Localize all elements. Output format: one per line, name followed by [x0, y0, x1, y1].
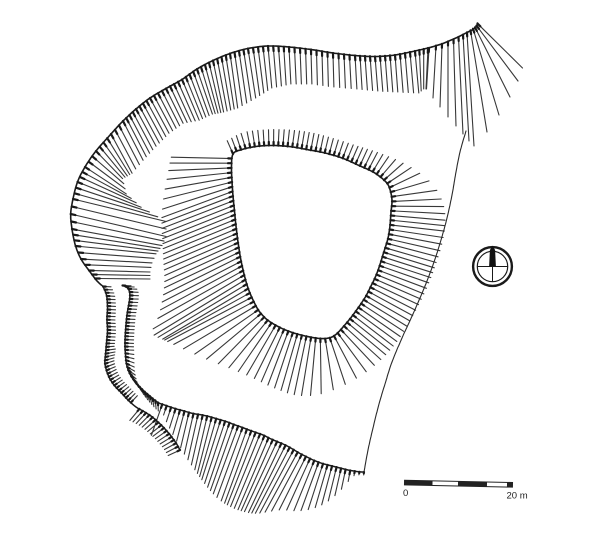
svg-text:0: 0	[403, 488, 408, 499]
svg-text:20 m: 20 m	[507, 491, 528, 502]
